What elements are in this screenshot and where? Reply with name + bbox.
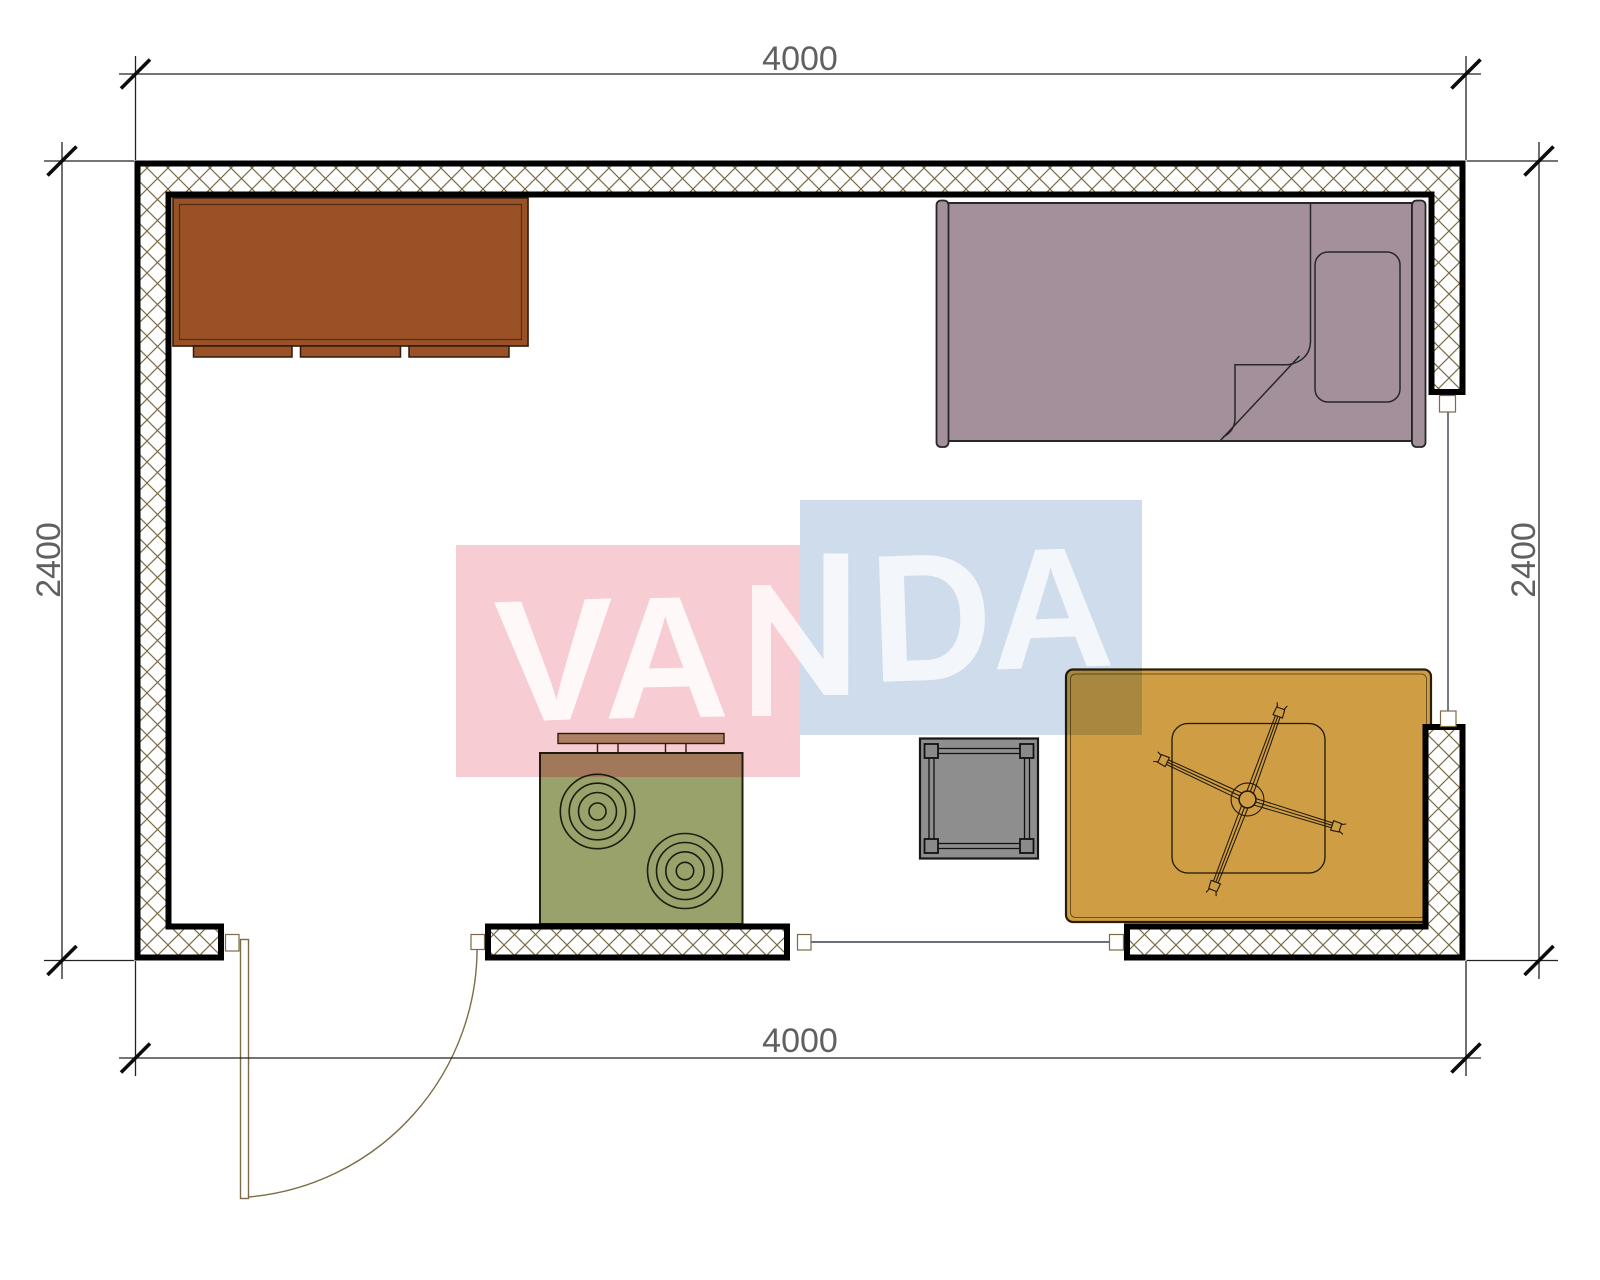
- svg-text:D: D: [866, 514, 995, 721]
- svg-text:2400: 2400: [1505, 522, 1543, 598]
- svg-text:2400: 2400: [30, 522, 68, 598]
- svg-text:A: A: [601, 558, 730, 755]
- svg-text:V: V: [492, 562, 618, 760]
- svg-text:4000: 4000: [762, 1022, 838, 1060]
- svg-text:A: A: [987, 511, 1117, 707]
- svg-text:4000: 4000: [762, 40, 838, 78]
